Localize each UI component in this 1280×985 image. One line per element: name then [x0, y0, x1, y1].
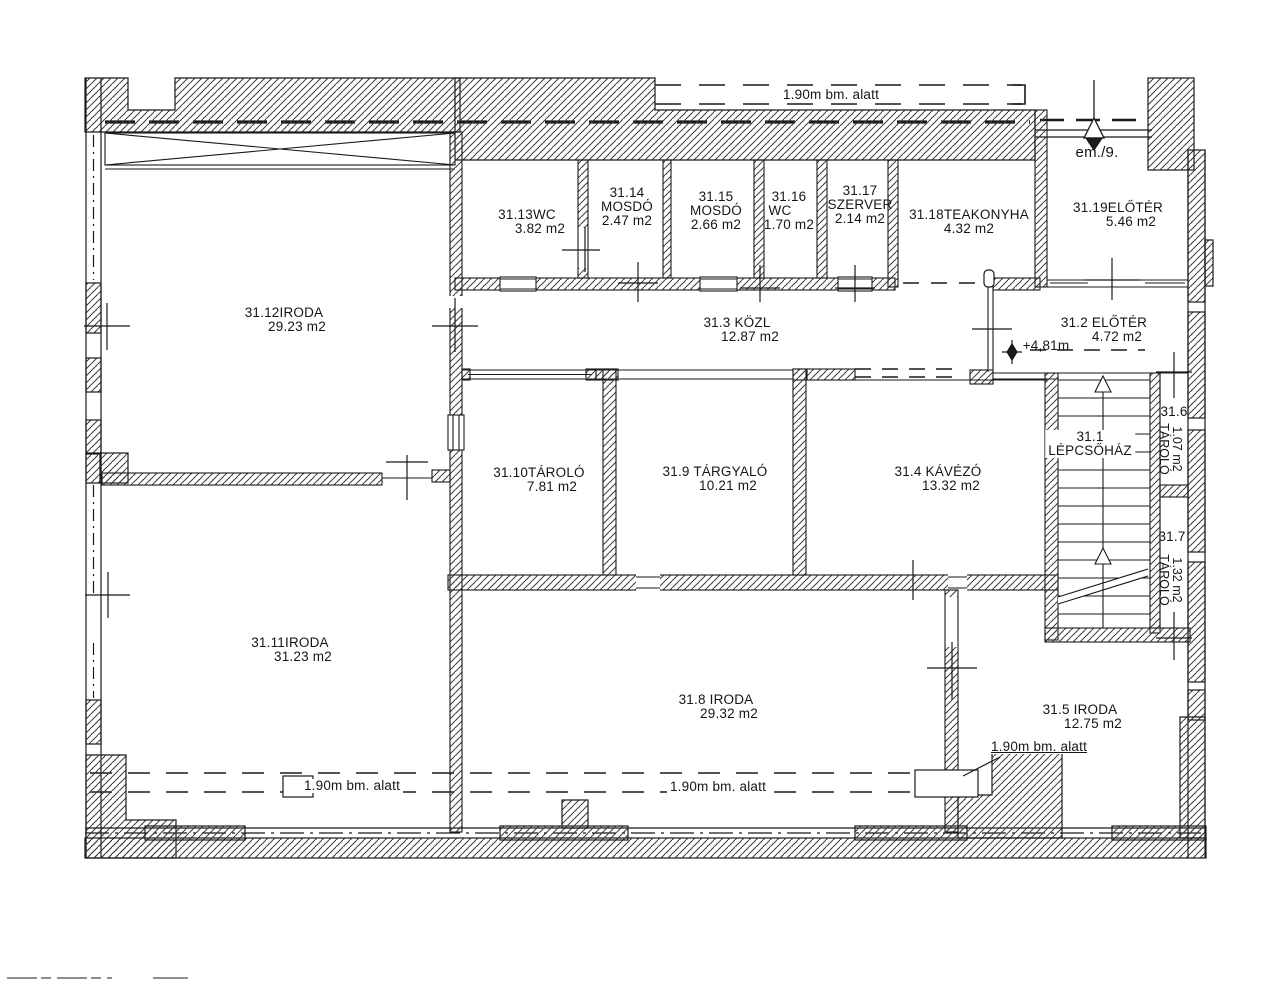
room-label-31-1: 31.1LÉPCSŐHÁZ	[1045, 430, 1135, 458]
room-label-31-8: 31.8 IRODA29.32 m2	[674, 693, 758, 721]
height-note-bottom-right: 1.90m bm. alatt	[988, 740, 1090, 754]
room-label-31-2: 31.2 ELŐTÉR4.72 m2	[1061, 316, 1147, 344]
room-label-31-6-vertical: 1.07 m2TÁROLÓ	[1157, 423, 1183, 474]
room-label-31-14: 31.14MOSDÓ2.47 m2	[601, 186, 653, 228]
room-label-31-4: 31.4 KÁVÉZÓ13.32 m2	[895, 465, 982, 493]
room-label-31-10: 31.10TÁROLÓ7.81 m2	[493, 466, 585, 494]
height-note-bottom-left: 1.90m bm. alatt	[301, 779, 403, 793]
room-label-31-17: 31.17SZERVER2.14 m2	[828, 184, 893, 226]
floor-plan-sheet: 31.12IRODA29.23 m2 31.13WC3.82 m2 31.14M…	[0, 0, 1280, 985]
room-label-31-7: 31.7	[1158, 530, 1185, 544]
entrance-label: em./9.	[1076, 146, 1119, 160]
room-label-31-15: 31.15MOSDÓ2.66 m2	[690, 190, 742, 232]
height-note-bottom-mid: 1.90m bm. alatt	[667, 780, 769, 794]
room-label-31-13: 31.13WC3.82 m2	[489, 208, 565, 236]
elevation-label: +4,81m	[1023, 339, 1070, 353]
axis-ticks	[84, 227, 1192, 700]
room-label-31-18: 31.18TEAKONYHA4.32 m2	[909, 208, 1029, 236]
room-label-31-11: 31.11IRODA31.23 m2	[248, 636, 332, 664]
room-label-31-5: 31.5 IRODA12.75 m2	[1038, 703, 1122, 731]
stair-up-arrow-icon	[1095, 548, 1111, 564]
room-label-31-16: 31.16WC1.70 m2	[764, 190, 814, 232]
x-beam	[105, 133, 455, 169]
stair-up-arrow-icon	[1095, 376, 1111, 392]
elevation-marker-icon	[1002, 340, 1022, 364]
room-label-31-7-vertical: 1.32 m2TÁROLÓ	[1157, 554, 1183, 605]
room-label-31-12: 31.12IRODA29.23 m2	[242, 306, 326, 334]
door-post-icon	[984, 270, 994, 287]
room-label-31-6: 31.6	[1160, 405, 1187, 419]
room-label-31-3: 31.3 KÖZL12.87 m2	[695, 316, 779, 344]
room-label-31-19: 31.19ELŐTÉR5.46 m2	[1073, 201, 1163, 229]
room-label-31-9: 31.9 TÁRGYALÓ10.21 m2	[663, 465, 768, 493]
entrance-marker-icon	[1084, 80, 1104, 150]
door-symbols	[984, 270, 994, 287]
height-note-top: 1.90m bm. alatt	[780, 88, 882, 102]
